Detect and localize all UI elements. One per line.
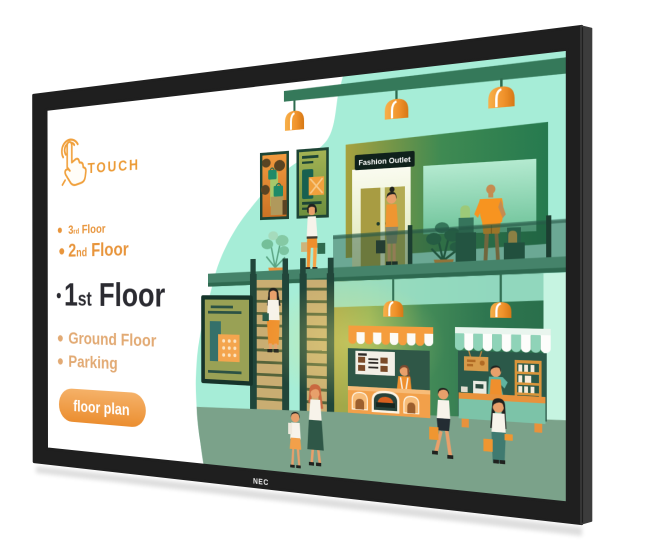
svg-text:Ground Floor: Ground Floor [68,330,156,352]
svg-text:Parking: Parking [68,353,117,374]
svg-text:1st Floor: 1st Floor [64,276,166,314]
svg-text:2nd Floor: 2nd Floor [68,240,128,261]
svg-text:TOUCH: TOUCH [88,155,140,177]
svg-text:3rd Floor: 3rd Floor [68,223,105,237]
